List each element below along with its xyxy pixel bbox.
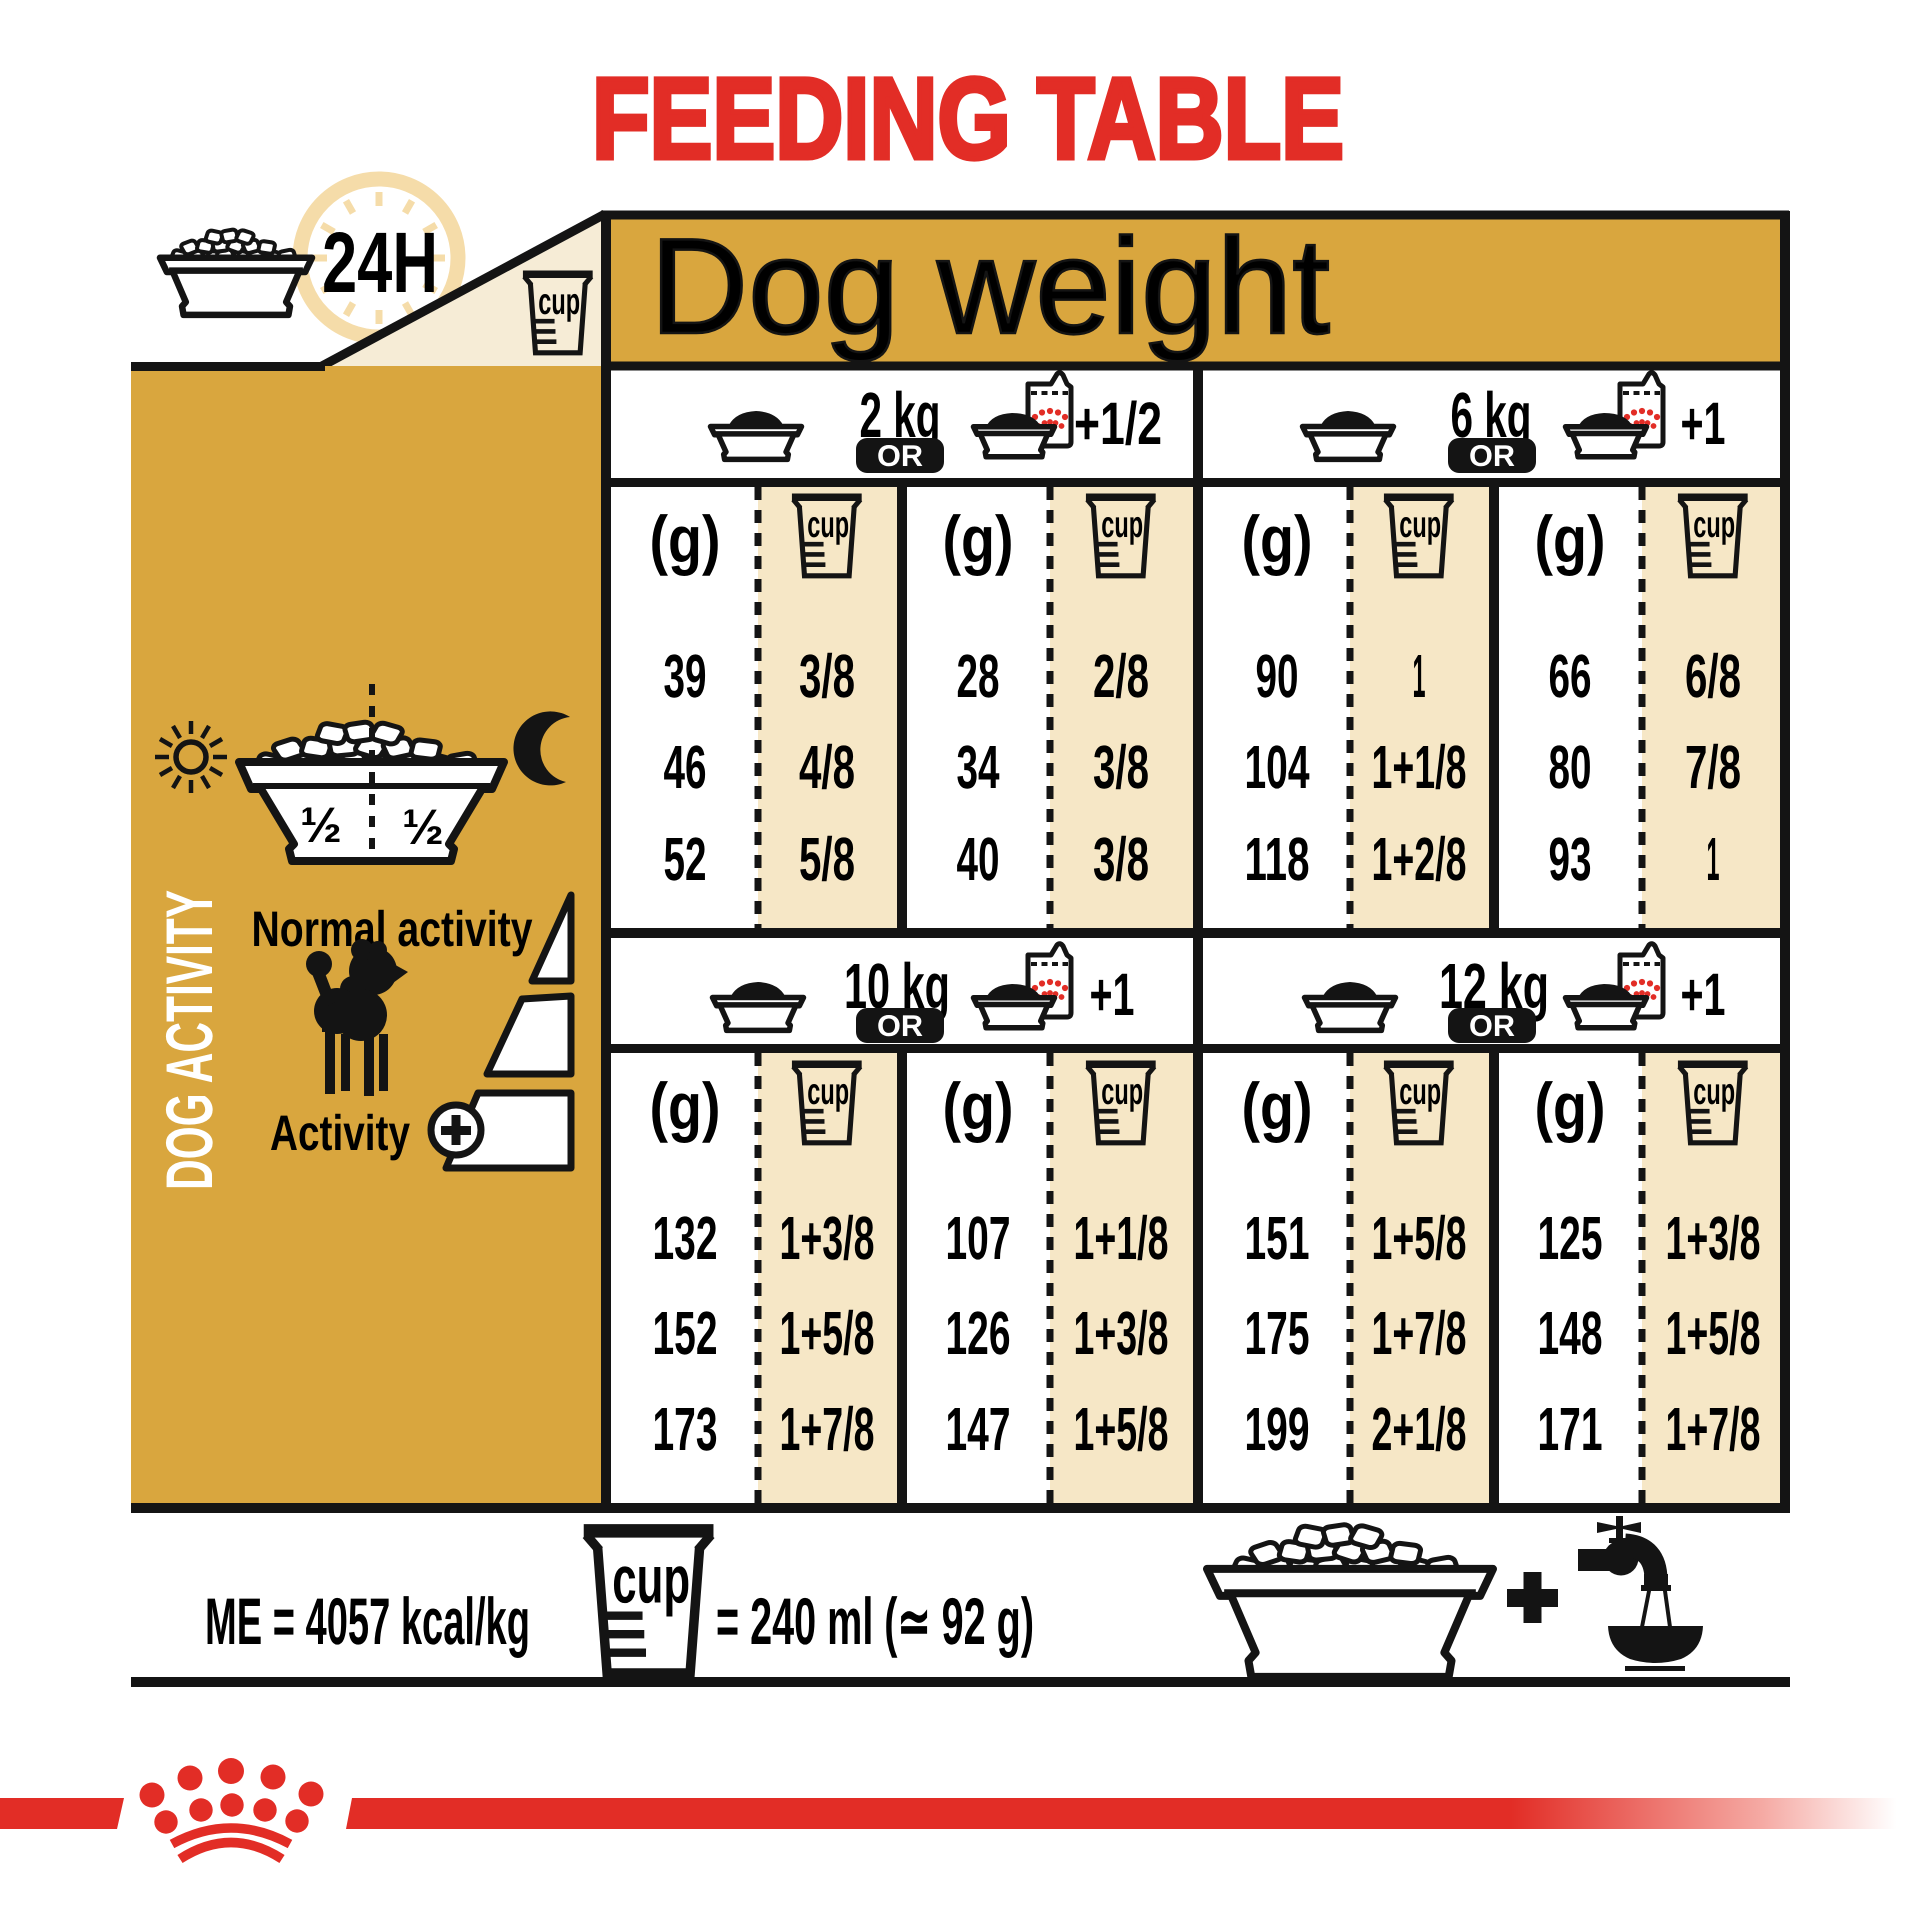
svg-text:Normal activity: Normal activity — [252, 901, 533, 957]
svg-text:OR: OR — [877, 1010, 923, 1043]
svg-text:(g): (g) — [943, 1069, 1014, 1143]
svg-text:DOG ACTIVITY: DOG ACTIVITY — [152, 890, 226, 1190]
svg-text:Activity: Activity — [270, 1105, 410, 1161]
svg-text:1+2/8: 1+2/8 — [1372, 825, 1467, 893]
svg-text:7/8: 7/8 — [1685, 733, 1741, 801]
svg-text:39: 39 — [664, 642, 707, 710]
svg-text:1+5/8: 1+5/8 — [1372, 1204, 1467, 1272]
svg-text:28: 28 — [957, 642, 1000, 710]
svg-text:4/8: 4/8 — [799, 733, 855, 801]
svg-text:= 240 ml (≃ 92 g): = 240 ml (≃ 92 g) — [716, 1584, 1034, 1658]
svg-text:1: 1 — [1413, 642, 1426, 710]
svg-text:½: ½ — [402, 799, 444, 855]
svg-text:½: ½ — [300, 797, 342, 853]
svg-text:66: 66 — [1549, 642, 1592, 710]
svg-text:125: 125 — [1538, 1204, 1603, 1272]
svg-text:24H: 24H — [322, 215, 438, 311]
svg-text:118: 118 — [1245, 825, 1310, 893]
svg-text:90: 90 — [1256, 642, 1299, 710]
svg-text:171: 171 — [1538, 1395, 1603, 1463]
svg-text:152: 152 — [653, 1299, 718, 1367]
svg-text:1+1/8: 1+1/8 — [1372, 733, 1467, 801]
svg-text:52: 52 — [664, 825, 707, 893]
svg-text:175: 175 — [1245, 1299, 1310, 1367]
svg-text:(g): (g) — [1242, 1069, 1313, 1143]
svg-text:(g): (g) — [650, 1069, 721, 1143]
svg-text:FEEDING TABLE: FEEDING TABLE — [592, 55, 1344, 183]
svg-text:148: 148 — [1538, 1299, 1603, 1367]
svg-text:2+1/8: 2+1/8 — [1372, 1395, 1467, 1463]
svg-text:1+7/8: 1+7/8 — [780, 1395, 875, 1463]
svg-text:1+1/8: 1+1/8 — [1074, 1204, 1169, 1272]
svg-text:3/8: 3/8 — [799, 642, 855, 710]
svg-text:(g): (g) — [650, 502, 721, 576]
svg-text:6/8: 6/8 — [1685, 642, 1741, 710]
svg-text:+1: +1 — [1681, 390, 1726, 457]
svg-text:3/8: 3/8 — [1093, 825, 1149, 893]
svg-text:1+7/8: 1+7/8 — [1666, 1395, 1761, 1463]
svg-text:126: 126 — [946, 1299, 1011, 1367]
svg-text:5/8: 5/8 — [799, 825, 855, 893]
svg-text:1: 1 — [1707, 825, 1720, 893]
svg-text:93: 93 — [1549, 825, 1592, 893]
svg-text:+1: +1 — [1090, 961, 1135, 1028]
svg-text:(g): (g) — [1535, 1069, 1606, 1143]
svg-text:199: 199 — [1245, 1395, 1310, 1463]
svg-text:107: 107 — [946, 1204, 1011, 1272]
svg-text:80: 80 — [1549, 733, 1592, 801]
svg-text:+1/2: +1/2 — [1074, 390, 1162, 457]
svg-text:(g): (g) — [1535, 502, 1606, 576]
svg-text:1+5/8: 1+5/8 — [1666, 1299, 1761, 1367]
svg-text:46: 46 — [664, 733, 707, 801]
svg-text:ME = 4057 kcal/kg: ME = 4057 kcal/kg — [205, 1584, 530, 1658]
svg-text:(g): (g) — [943, 502, 1014, 576]
svg-text:1+5/8: 1+5/8 — [780, 1299, 875, 1367]
svg-text:173: 173 — [653, 1395, 718, 1463]
svg-text:132: 132 — [653, 1204, 718, 1272]
svg-text:147: 147 — [946, 1395, 1011, 1463]
svg-text:1+3/8: 1+3/8 — [1666, 1204, 1761, 1272]
svg-text:2/8: 2/8 — [1093, 642, 1149, 710]
svg-text:OR: OR — [877, 440, 923, 473]
svg-text:40: 40 — [957, 825, 1000, 893]
svg-text:1+3/8: 1+3/8 — [1074, 1299, 1169, 1367]
svg-text:Dog weight: Dog weight — [650, 210, 1330, 362]
svg-text:OR: OR — [1469, 440, 1515, 473]
svg-text:OR: OR — [1469, 1010, 1515, 1043]
svg-text:(g): (g) — [1242, 502, 1313, 576]
svg-text:1+3/8: 1+3/8 — [780, 1204, 875, 1272]
svg-text:104: 104 — [1245, 733, 1310, 801]
svg-text:34: 34 — [957, 733, 1000, 801]
svg-text:1+5/8: 1+5/8 — [1074, 1395, 1169, 1463]
svg-text:3/8: 3/8 — [1093, 733, 1149, 801]
svg-text:151: 151 — [1245, 1204, 1310, 1272]
svg-text:+1: +1 — [1681, 961, 1726, 1028]
svg-text:1+7/8: 1+7/8 — [1372, 1299, 1467, 1367]
